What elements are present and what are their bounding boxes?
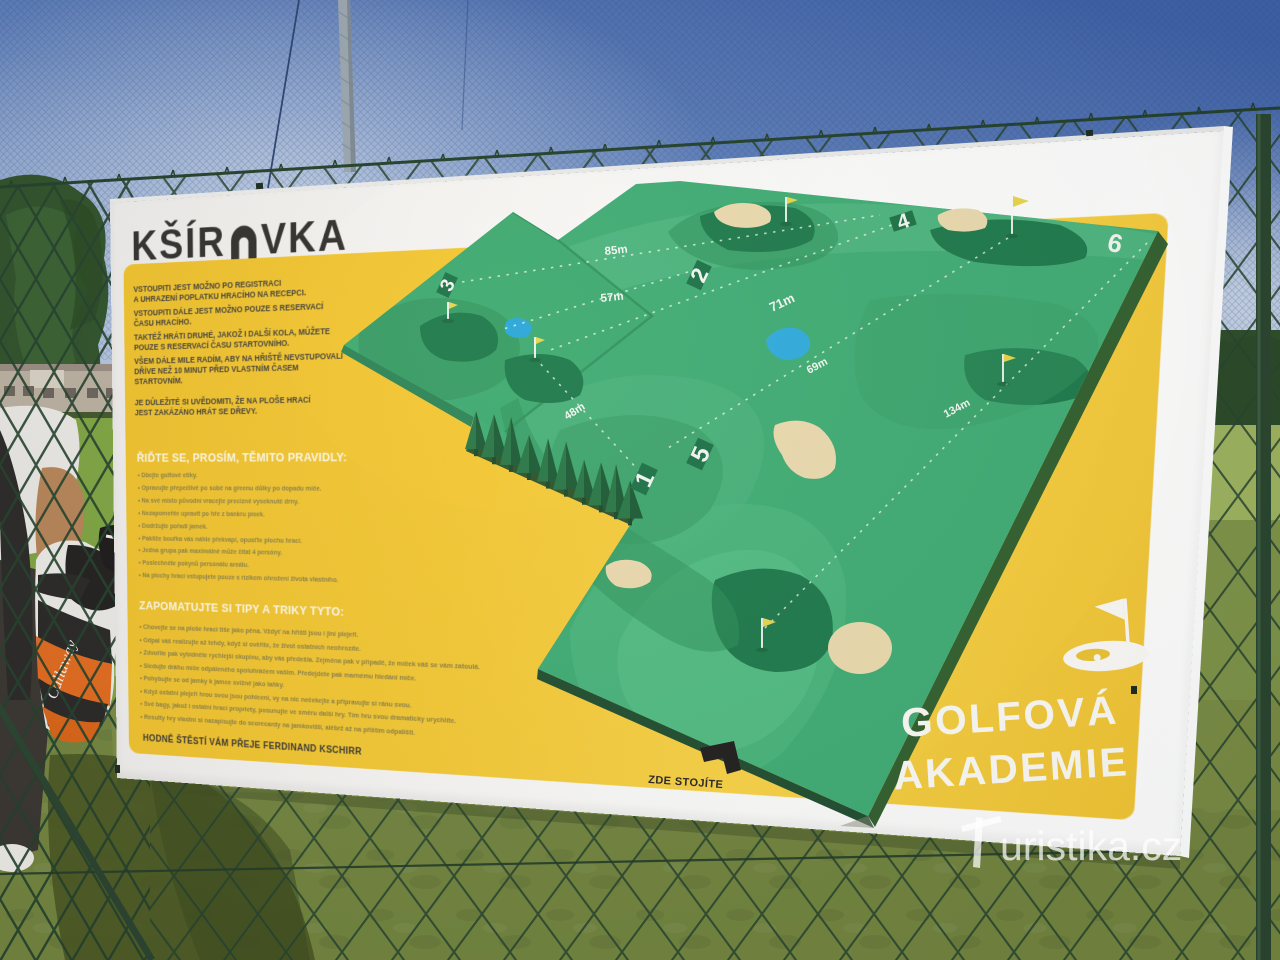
svg-text:uristika.cz: uristika.cz xyxy=(1000,823,1182,869)
svg-text:57m: 57m xyxy=(600,291,624,305)
svg-text:ZDE STOJÍTE: ZDE STOJÍTE xyxy=(648,773,724,791)
svg-text:85m: 85m xyxy=(604,244,628,258)
svg-text:AKADEMIE: AKADEMIE xyxy=(892,738,1130,798)
